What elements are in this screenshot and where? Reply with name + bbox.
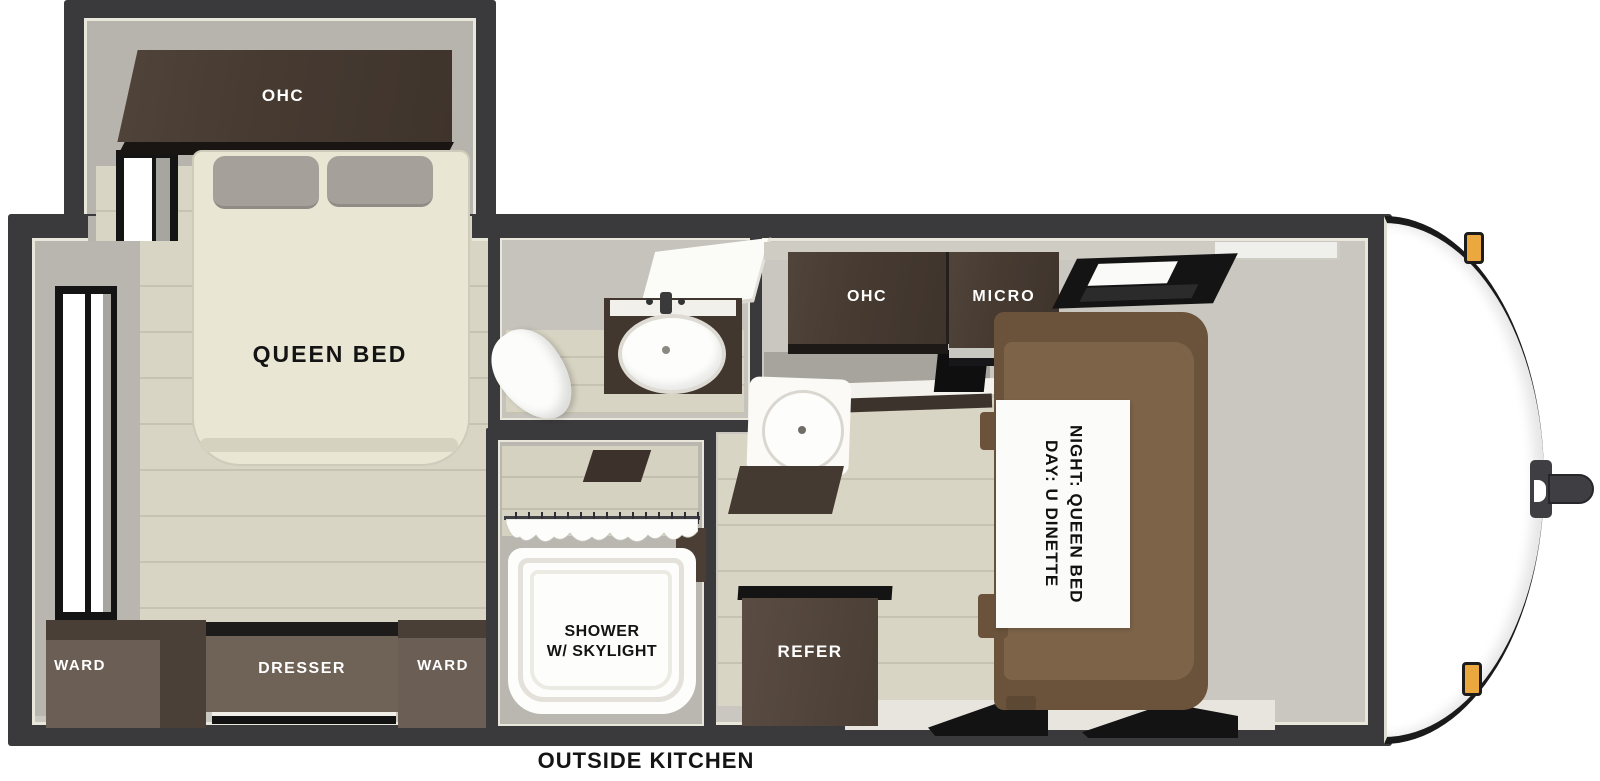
marker-light-bottom (1462, 662, 1482, 696)
pillow (327, 156, 433, 207)
kitchen-ohc-label: OHC (788, 288, 946, 306)
faucet-handle (646, 298, 653, 305)
wardrobe-right-label: WARD (388, 657, 498, 674)
floorplan-canvas: OHC QUEEN BED WARD DRESSER WARD (0, 0, 1600, 781)
dinette-night-line: NIGHT: QUEEN BED (1063, 425, 1088, 603)
shower-label-line2: W/ SKYLIGHT (512, 642, 692, 662)
u-dinette-foot (1006, 696, 1036, 710)
dinette-day-line: DAY: U DINETTE (1038, 425, 1063, 603)
pillow (213, 156, 319, 209)
shower-vent (583, 450, 651, 482)
bedroom-left-window-glass (91, 294, 103, 612)
cabinet-shadow (788, 344, 948, 354)
shower-curtain (506, 519, 698, 549)
bedroom-overhead-cabinet: OHC (114, 50, 452, 142)
slideout-window-shade (156, 158, 170, 254)
queen-bed-foot-shadow (200, 438, 458, 452)
refrigerator-label: REFER (742, 642, 878, 662)
bathroom-sink-drain (662, 346, 670, 354)
kitchen-window-glass (1088, 261, 1178, 286)
queen-bed-label: QUEEN BED (230, 341, 430, 368)
slideout-window-glass (124, 158, 152, 254)
refrigerator (742, 598, 878, 726)
micro-label: MICRO (949, 288, 1059, 306)
outside-kitchen-label: OUTSIDE KITCHEN (446, 748, 846, 774)
hitch-coupler (1548, 474, 1594, 504)
u-dinette-label-text: DAY: U DINETTE NIGHT: QUEEN BED (1038, 425, 1087, 603)
rear-window (212, 716, 396, 724)
bedroom-left-window-glass (63, 294, 85, 612)
bathroom-sink (618, 314, 726, 394)
bedroom-ohc-label: OHC (262, 86, 304, 106)
wardrobe-left-label: WARD (30, 657, 130, 674)
under-sink-cabinet (728, 466, 844, 514)
bathroom-faucet (660, 292, 672, 314)
bedroom-left-window-shade (103, 294, 111, 612)
shower-label: SHOWER W/ SKYLIGHT (512, 622, 692, 662)
faucet-handle (678, 298, 685, 305)
dresser-label: DRESSER (232, 660, 372, 678)
kitchen-sink-drain (798, 426, 806, 434)
wardrobe-left-side (160, 620, 206, 728)
marker-light-top (1464, 232, 1484, 264)
shower-label-line1: SHOWER (512, 622, 692, 642)
kitchen-window-shade (1080, 284, 1199, 302)
u-dinette-label: DAY: U DINETTE NIGHT: QUEEN BED (996, 400, 1130, 628)
kitchen-window (1052, 253, 1238, 308)
hitch-bracket-notch (1534, 480, 1546, 502)
dresser-top (206, 622, 398, 636)
wardrobe-right (398, 620, 486, 728)
